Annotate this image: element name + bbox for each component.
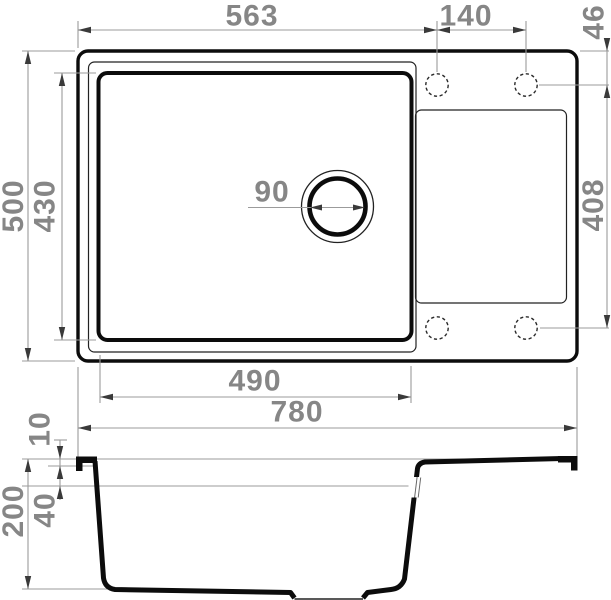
arrow-200-top	[25, 459, 31, 472]
tap-hole-top-left	[426, 74, 448, 96]
sink-outer-outline	[78, 51, 577, 361]
bowl-left-wall-profile	[95, 461, 295, 598]
arrow-46-bottom	[604, 85, 610, 98]
arrow-500-bottom	[25, 348, 31, 361]
arrow-490-right	[398, 394, 411, 400]
label-408: 408	[577, 178, 610, 231]
arrow-780-right	[564, 425, 577, 431]
label-200: 200	[0, 484, 30, 537]
arrow-780-left	[78, 425, 91, 431]
arrow-430-top	[59, 73, 65, 86]
sink-technical-drawing: 563 140 46 500 430 408 90 490 780 10 40 …	[0, 0, 611, 600]
top-view-dimensions	[22, 21, 610, 457]
top-view	[78, 51, 577, 361]
label-40: 40	[29, 492, 62, 527]
bowl-right-wall-profile	[363, 459, 562, 599]
label-500: 500	[0, 179, 30, 232]
technical-drawing-page: 563 140 46 500 430 408 90 490 780 10 40 …	[0, 0, 611, 600]
drainboard-recess-outline	[416, 110, 567, 303]
arrow-10-top	[57, 446, 63, 459]
tap-hole-top-right	[515, 74, 537, 96]
arrow-500-top	[25, 51, 31, 64]
drain-outer-circle	[302, 171, 374, 243]
side-view	[22, 456, 578, 599]
arrow-408-bottom	[604, 315, 610, 328]
label-140: 140	[439, 0, 492, 33]
arrow-10-bottom	[57, 466, 63, 479]
label-563: 563	[225, 0, 278, 33]
label-90: 90	[254, 176, 289, 209]
label-490: 490	[228, 365, 281, 398]
label-46: 46	[578, 4, 611, 39]
right-rim-profile	[558, 456, 578, 471]
label-430: 430	[29, 179, 62, 232]
label-780: 780	[270, 396, 323, 429]
arrow-430-bottom	[59, 327, 65, 340]
tap-hole-bottom-right	[515, 317, 537, 339]
label-10: 10	[24, 411, 57, 446]
arrow-490-left	[100, 394, 113, 400]
arrow-200-bottom	[25, 576, 31, 589]
arrow-140-right	[513, 27, 526, 33]
arrow-563-left	[78, 27, 91, 33]
tap-hole-bottom-left	[426, 317, 448, 339]
arrow-563-right	[424, 27, 437, 33]
